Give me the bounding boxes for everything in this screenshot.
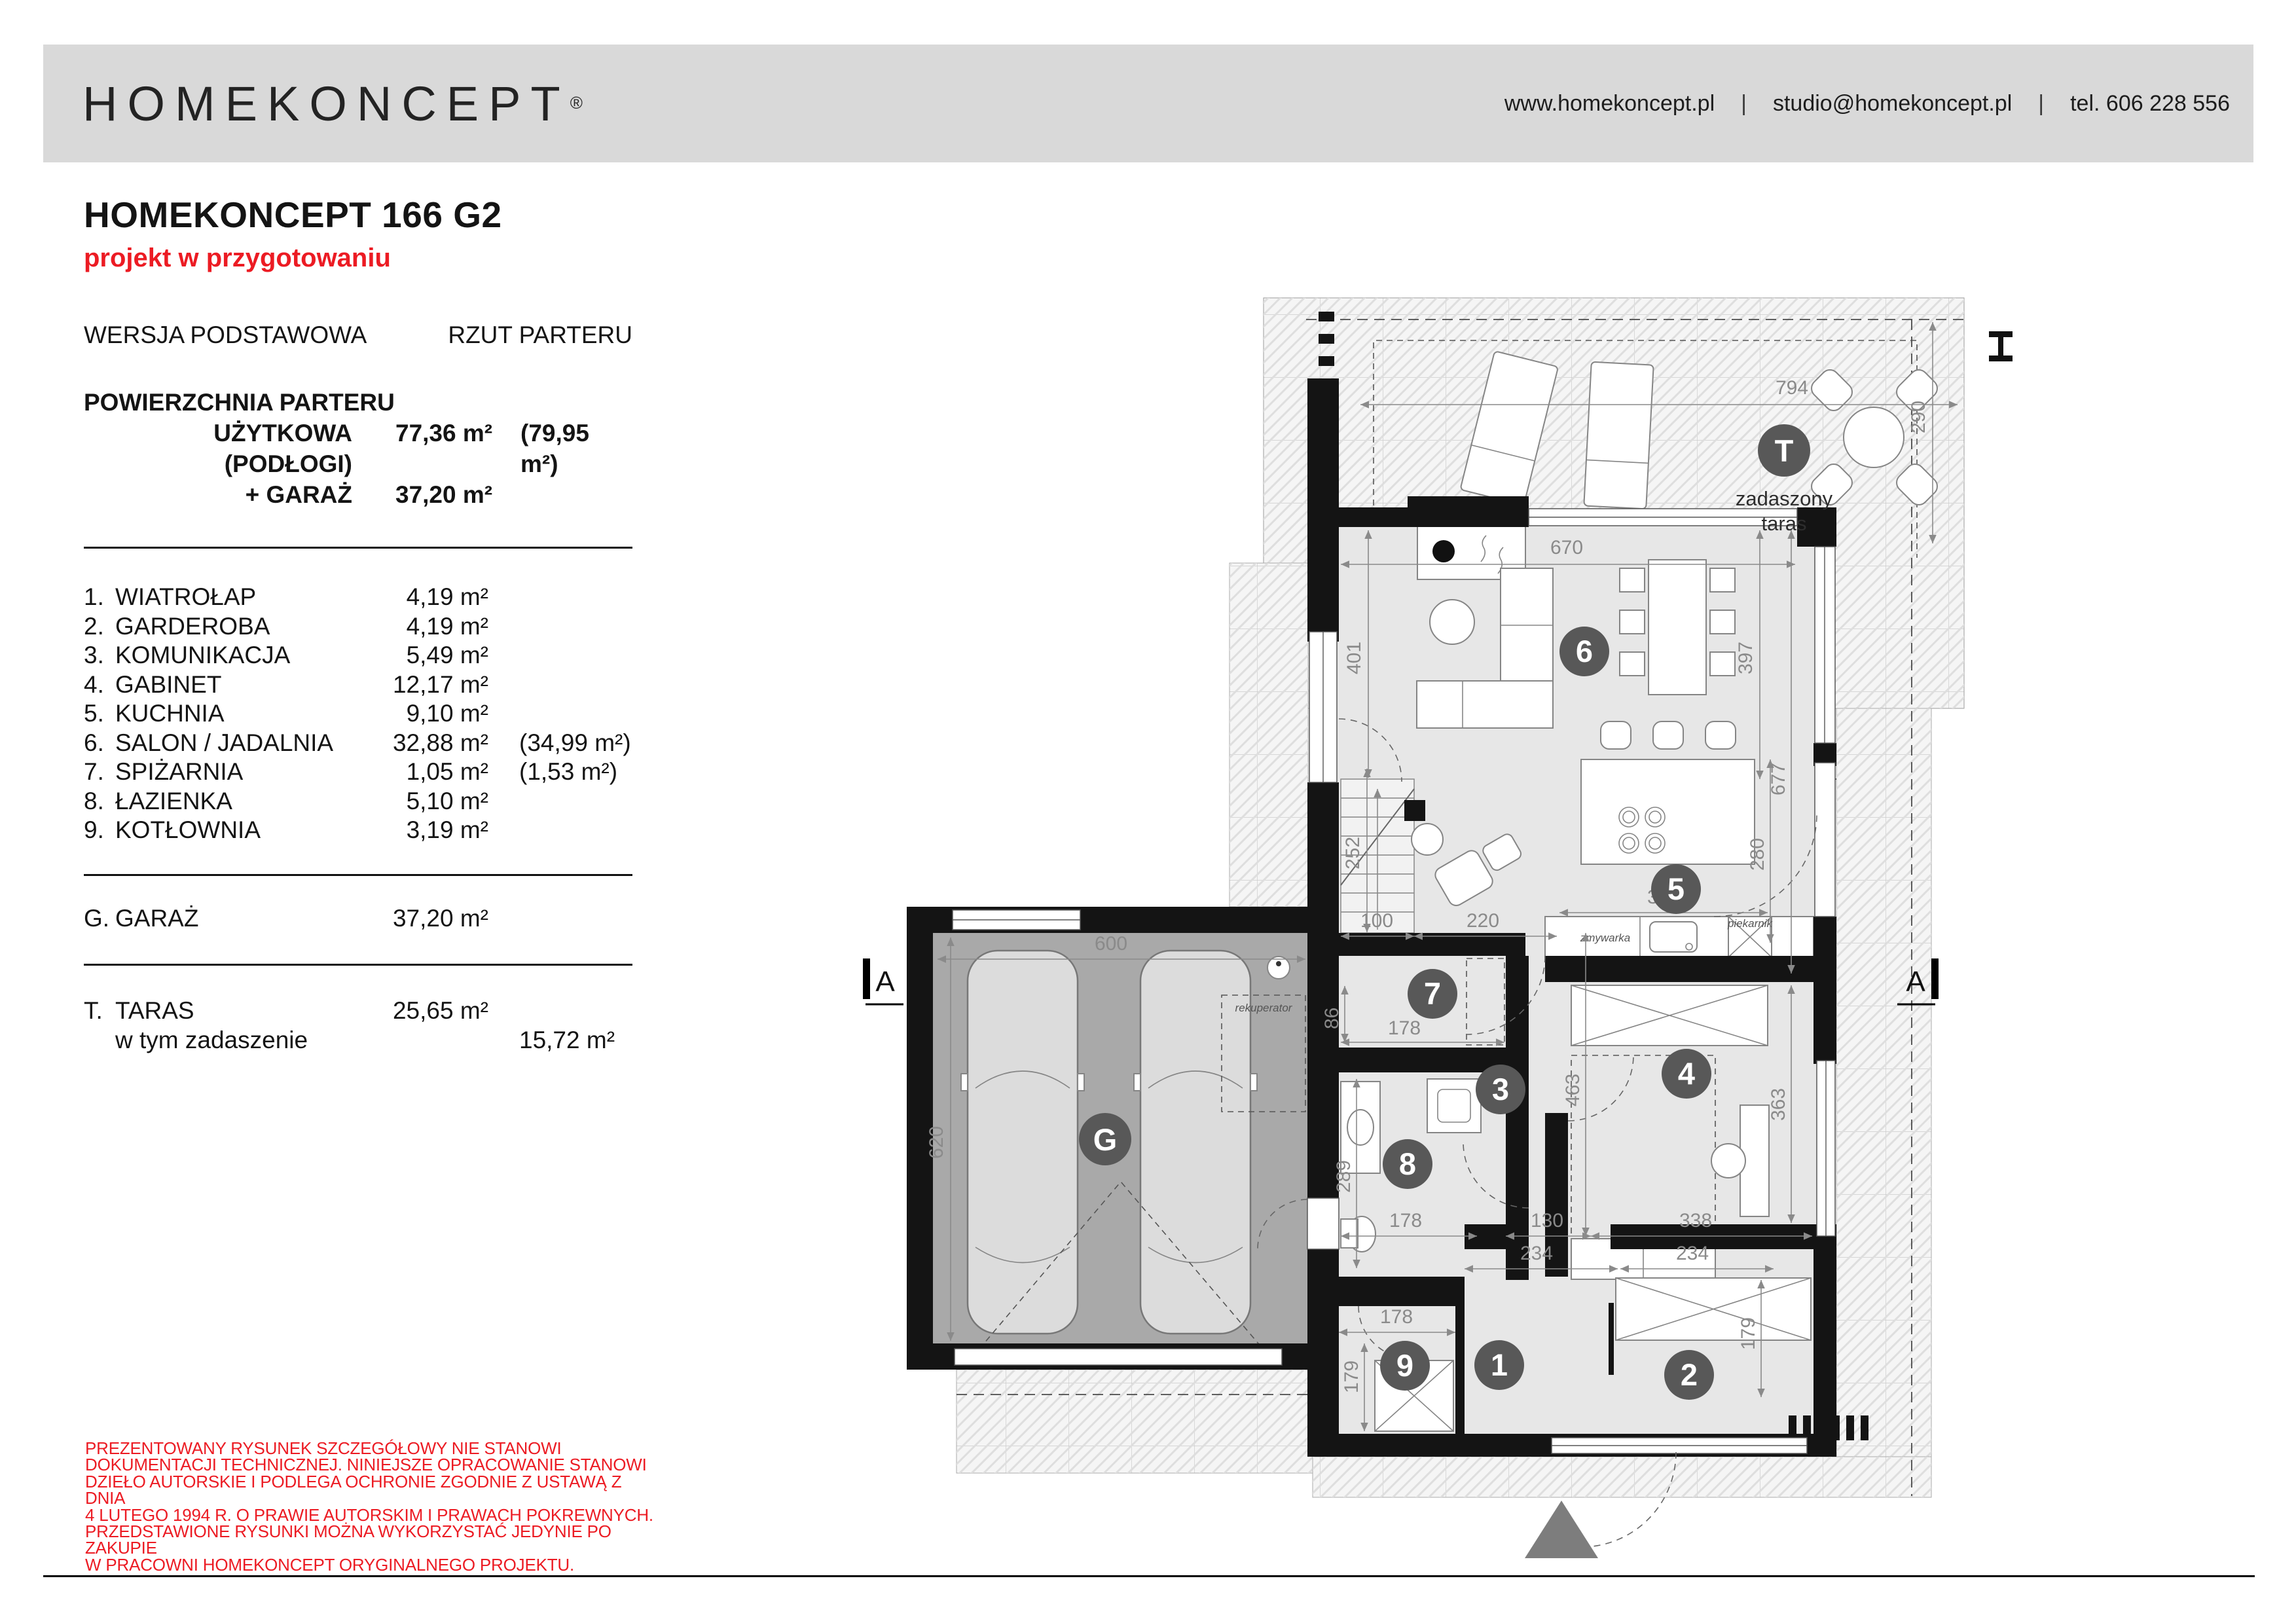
- room-row: 6.SALON / JADALNIA32,88 m²(34,99 m²): [84, 729, 632, 758]
- svg-text:289: 289: [1333, 1160, 1355, 1193]
- email-link: studio@homekoncept.pl: [1773, 91, 2012, 117]
- room-row: 8.ŁAZIENKA5,10 m²: [84, 787, 632, 816]
- svg-text:677: 677: [1768, 763, 1789, 795]
- room-row: 7.SPIŻARNIA1,05 m²(1,53 m²): [84, 757, 632, 787]
- svg-text:9: 9: [1396, 1348, 1413, 1383]
- washbasin: [1347, 1110, 1374, 1145]
- terrace-rows: T.TARAS25,65 m² w tym zadaszenie15,72 m²: [84, 996, 632, 1055]
- version-label: WERSJA PODSTAWOWA: [84, 321, 367, 349]
- terrace-label-line1: zadaszony: [1736, 487, 1833, 510]
- svg-text:T: T: [1775, 433, 1794, 468]
- room-badge-2: 2: [1664, 1350, 1714, 1400]
- homekoncept-logo: HOMEKONCEPT®: [82, 76, 583, 132]
- car: [961, 951, 1084, 1334]
- svg-text:5: 5: [1667, 871, 1685, 906]
- svg-text:8: 8: [1399, 1146, 1416, 1181]
- washer: [1427, 1079, 1481, 1133]
- svg-text:A: A: [1906, 966, 1925, 998]
- svg-text:397: 397: [1735, 642, 1757, 674]
- divider: [84, 874, 632, 876]
- steel-column-icon: [1989, 331, 2013, 361]
- svg-text:401: 401: [1343, 642, 1365, 674]
- area-row: UŻYTKOWA (PODŁOGI) 77,36 m² (79,95 m²): [84, 418, 632, 479]
- room-badge-3: 3: [1476, 1065, 1525, 1114]
- garage-row: G.GARAŻ37,20 m²: [84, 905, 632, 932]
- svg-text:G: G: [1093, 1122, 1118, 1157]
- room-badge-7: 7: [1408, 969, 1457, 1019]
- svg-text:2: 2: [1681, 1357, 1698, 1392]
- svg-text:363: 363: [1768, 1088, 1789, 1121]
- logo-text: HOMEKONCEPT: [82, 77, 570, 131]
- svg-text:179: 179: [1341, 1360, 1362, 1393]
- coffee-table: [1430, 600, 1474, 644]
- floor-plan: zmywarka piekarnik: [831, 275, 2030, 1578]
- room-badge-8: 8: [1383, 1139, 1432, 1189]
- terrace-table: [1844, 407, 1904, 467]
- divider: [84, 547, 632, 549]
- svg-text:6: 6: [1576, 634, 1593, 668]
- svg-text:338: 338: [1679, 1210, 1712, 1231]
- separator: |: [2038, 91, 2044, 117]
- kitchen-island: [1581, 759, 1755, 864]
- room-list: 1.WIATROŁAP4,19 m² 2.GARDEROBA4,19 m² 3.…: [84, 583, 632, 845]
- registered-mark: ®: [570, 93, 583, 113]
- svg-text:7: 7: [1424, 976, 1441, 1011]
- recuperator-label: rekuperator: [1235, 1002, 1293, 1014]
- svg-text:290: 290: [1908, 401, 1929, 433]
- svg-text:130: 130: [1531, 1210, 1563, 1231]
- header-bar: HOMEKONCEPT® www.homekoncept.pl | studio…: [43, 45, 2253, 162]
- website-link: www.homekoncept.pl: [1504, 91, 1715, 117]
- svg-text:1: 1: [1491, 1347, 1508, 1382]
- svg-text:220: 220: [1467, 910, 1499, 932]
- svg-text:178: 178: [1388, 1017, 1421, 1039]
- room-badge-5: 5: [1651, 864, 1701, 914]
- room-row: 1.WIATROŁAP4,19 m²: [84, 583, 632, 612]
- garage-badge: G: [1079, 1113, 1131, 1165]
- view-label: RZUT PARTERU: [448, 321, 632, 349]
- desk-chair: [1711, 1144, 1745, 1178]
- svg-text:234: 234: [1676, 1243, 1709, 1264]
- svg-text:178: 178: [1389, 1210, 1422, 1231]
- svg-text:620: 620: [926, 1126, 947, 1159]
- svg-text:A: A: [875, 966, 895, 998]
- terrace-label-line2: taras: [1762, 512, 1807, 535]
- room-row: 5.KUCHNIA9,10 m²: [84, 699, 632, 729]
- svg-text:3: 3: [1492, 1072, 1509, 1106]
- hall-wardrobes: [1616, 1278, 1811, 1340]
- svg-text:179: 179: [1738, 1317, 1759, 1350]
- legal-disclaimer: PREZENTOWANY RYSUNEK SZCZEGÓŁOWY NIE STA…: [85, 1440, 661, 1573]
- svg-text:178: 178: [1380, 1306, 1413, 1328]
- svg-text:4: 4: [1678, 1056, 1695, 1091]
- svg-text:234: 234: [1520, 1243, 1553, 1264]
- dishwasher-label: zmywarka: [1580, 932, 1631, 944]
- section-mark-left: A: [863, 958, 903, 1004]
- project-status: projekt w przygotowaniu: [84, 244, 632, 273]
- info-column: HOMEKONCEPT 166 G2 projekt w przygotowan…: [84, 194, 632, 1055]
- room-badge-4: 4: [1662, 1049, 1711, 1099]
- room-badge-9: 9: [1380, 1341, 1430, 1391]
- room-row: 2.GARDEROBA4,19 m²: [84, 612, 632, 642]
- area-row: + GARAŻ 37,20 m²: [84, 479, 632, 510]
- area-summary: POWIERZCHNIA PARTERU UŻYTKOWA (PODŁOGI) …: [84, 387, 632, 510]
- separator: |: [1741, 91, 1747, 117]
- terrace-badge: T: [1758, 424, 1810, 477]
- floor-drain: [1267, 957, 1290, 979]
- svg-text:100: 100: [1360, 910, 1393, 932]
- room-row: 3.KOMUNIKACJA5,49 m²: [84, 641, 632, 670]
- project-title: HOMEKONCEPT 166 G2: [84, 194, 632, 236]
- version-row: WERSJA PODSTAWOWA RZUT PARTERU: [84, 321, 632, 349]
- svg-text:600: 600: [1095, 933, 1127, 955]
- svg-text:670: 670: [1550, 537, 1583, 558]
- plan-sheet: HOMEKONCEPT® www.homekoncept.pl | studio…: [0, 0, 2296, 1623]
- area-heading: POWIERZCHNIA PARTERU: [84, 387, 632, 418]
- svg-text:794: 794: [1776, 377, 1808, 399]
- phone-number: tel. 606 228 556: [2070, 91, 2230, 117]
- room-row: 9.KOTŁOWNIA3,19 m²: [84, 816, 632, 845]
- divider: [84, 964, 632, 966]
- sink: [1650, 922, 1697, 952]
- contact-info: www.homekoncept.pl | studio@homekoncept.…: [1504, 91, 2230, 117]
- oven-label: piekarnik: [1727, 917, 1774, 930]
- dining-table: [1649, 560, 1706, 695]
- room-row: 4.GABINET12,17 m²: [84, 670, 632, 700]
- room-badge-1: 1: [1474, 1340, 1524, 1390]
- svg-text:252: 252: [1342, 837, 1364, 869]
- svg-text:280: 280: [1747, 838, 1768, 871]
- entrance-arrow: [1525, 1501, 1598, 1558]
- svg-text:463: 463: [1562, 1074, 1584, 1106]
- svg-text:86: 86: [1321, 1008, 1343, 1029]
- room-badge-6: 6: [1559, 627, 1609, 676]
